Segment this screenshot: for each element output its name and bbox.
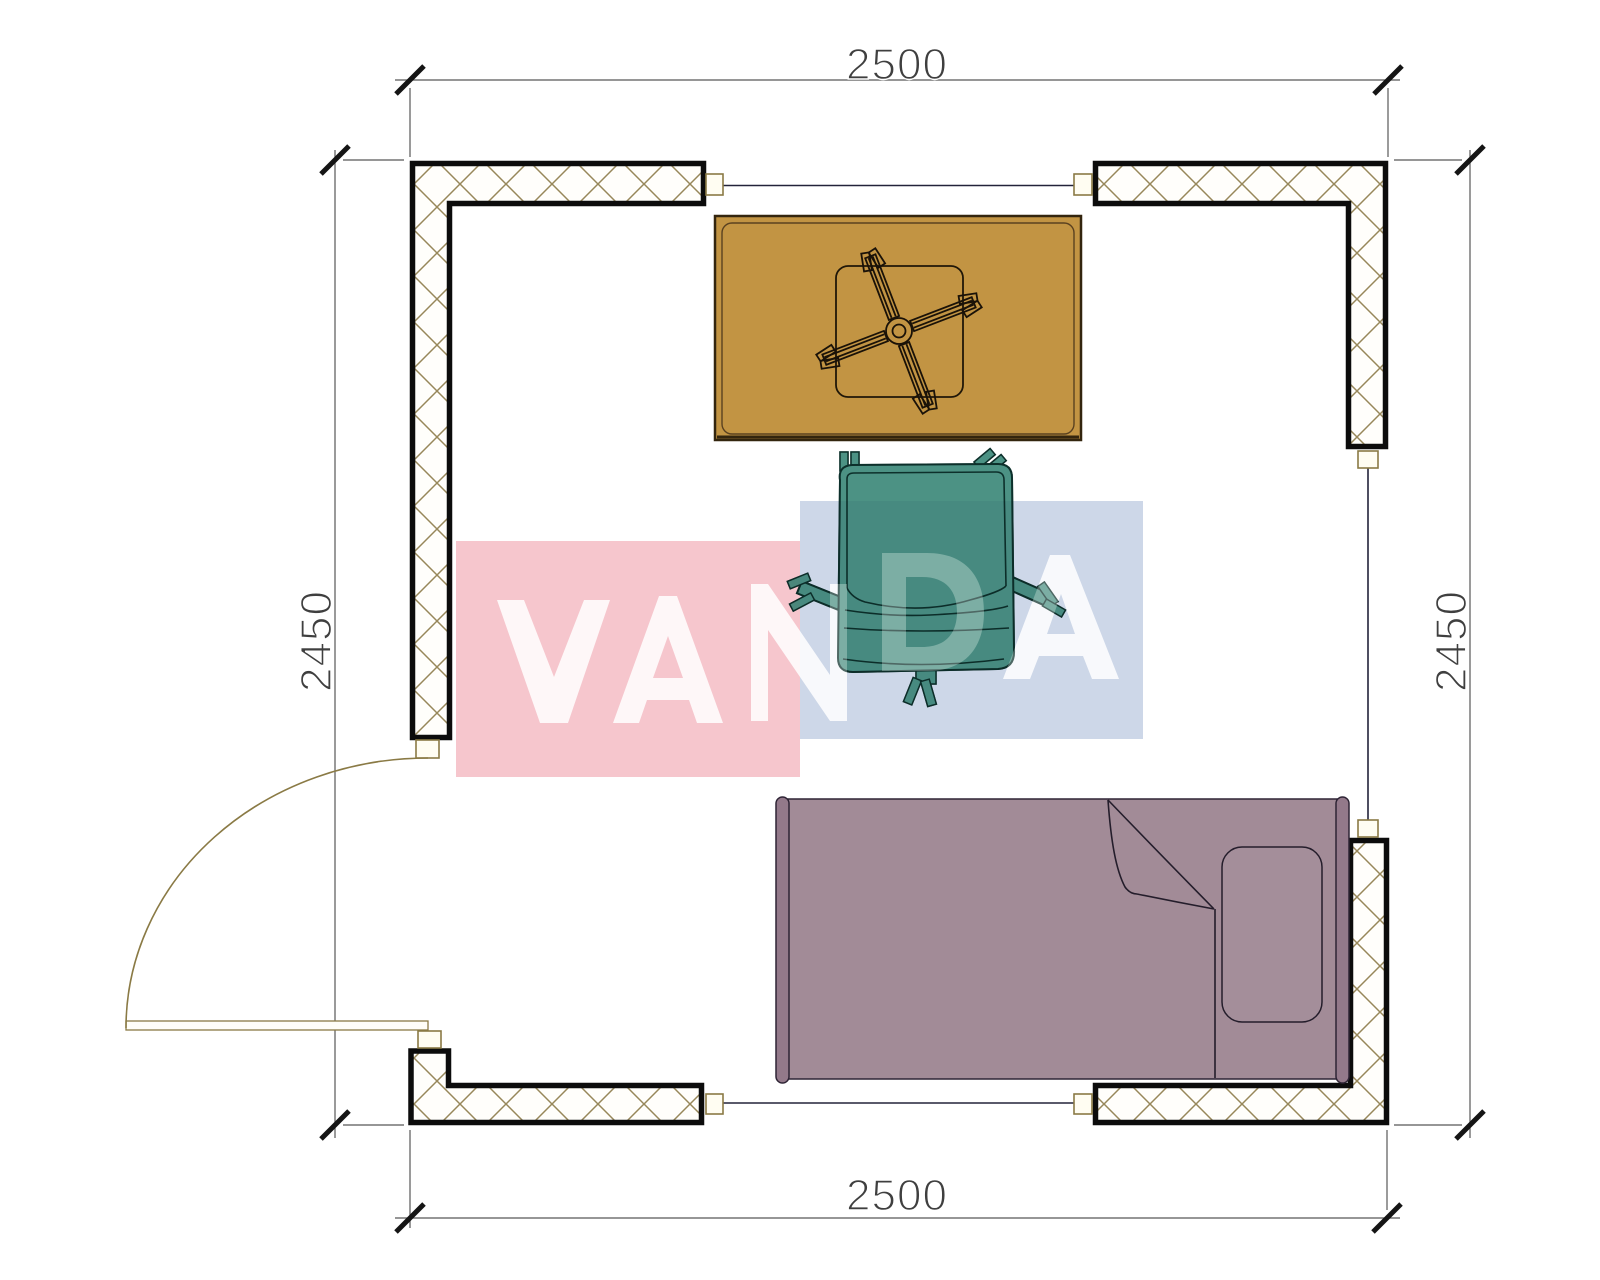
svg-text:2500: 2500 <box>846 40 948 89</box>
svg-text:2450: 2450 <box>292 590 341 692</box>
svg-text:2450: 2450 <box>1427 590 1476 692</box>
svg-text:2500: 2500 <box>846 1171 948 1220</box>
